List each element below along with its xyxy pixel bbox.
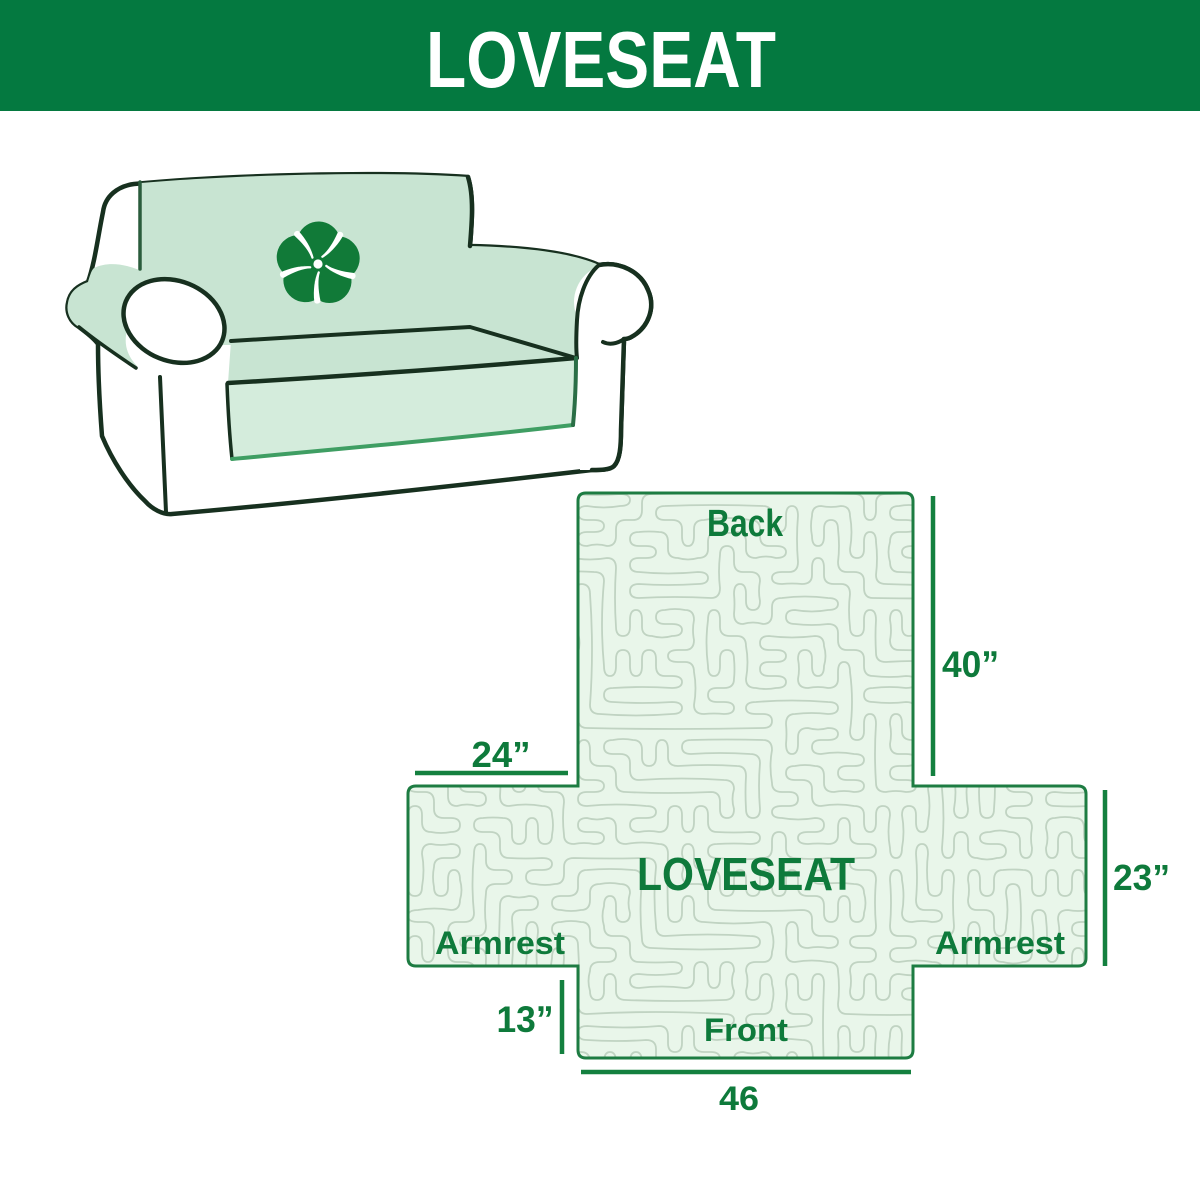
svg-text:46: 46 bbox=[719, 1080, 759, 1118]
svg-text:13”: 13” bbox=[497, 999, 554, 1040]
svg-text:Back: Back bbox=[707, 503, 784, 545]
svg-text:LOVESEAT: LOVESEAT bbox=[637, 848, 855, 900]
svg-text:Armrest: Armrest bbox=[935, 925, 1065, 961]
svg-text:40”: 40” bbox=[942, 644, 999, 685]
svg-text:LOVESEAT: LOVESEAT bbox=[426, 15, 776, 104]
svg-text:23”: 23” bbox=[1113, 857, 1170, 898]
svg-text:Armrest: Armrest bbox=[435, 925, 565, 961]
svg-text:24”: 24” bbox=[472, 734, 531, 775]
svg-text:Front: Front bbox=[704, 1012, 788, 1048]
